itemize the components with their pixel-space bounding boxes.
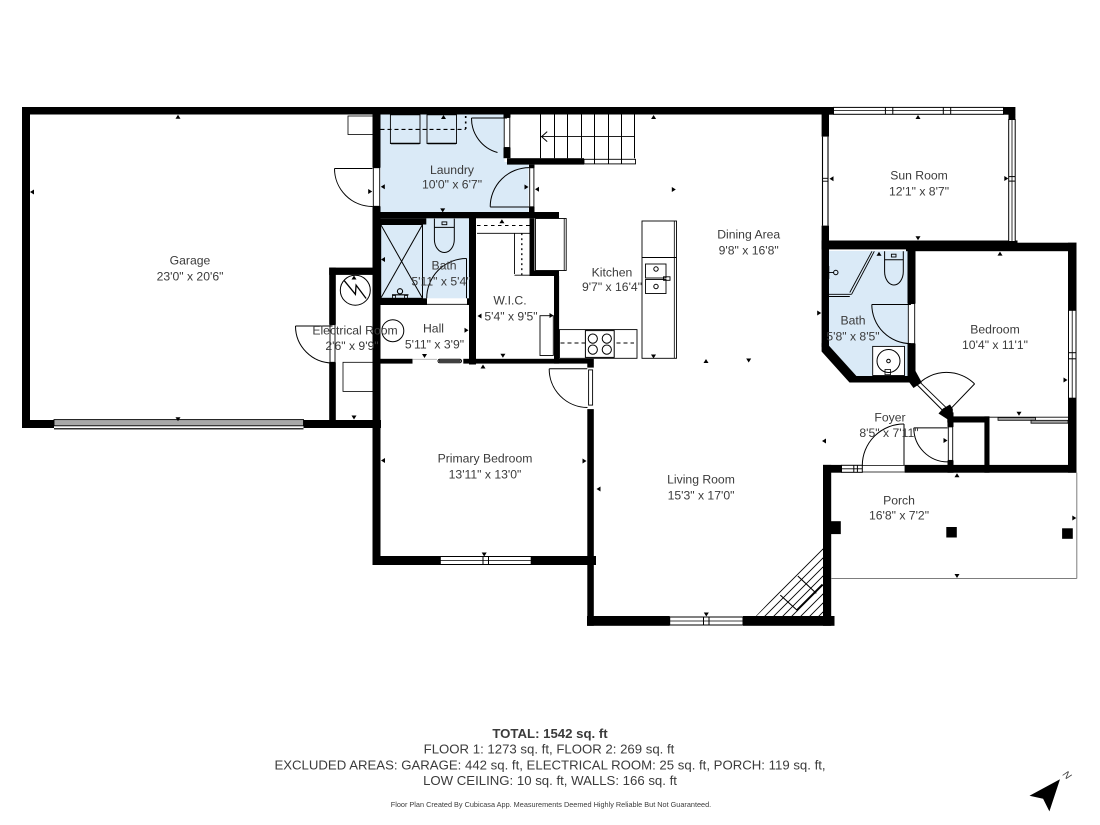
svg-text:23'0" x 20'6": 23'0" x 20'6" [157,270,224,284]
svg-text:Bedroom: Bedroom [970,323,1019,337]
svg-text:5'11" x 3'9": 5'11" x 3'9" [405,338,464,352]
svg-text:Living Room: Living Room [667,473,735,487]
svg-text:FLOOR 1: 1273 sq. ft, FLOOR 2:: FLOOR 1: 1273 sq. ft, FLOOR 2: 269 sq. f… [424,742,675,757]
svg-text:Dining Area: Dining Area [717,228,780,242]
svg-text:2'6" x 9'9": 2'6" x 9'9" [325,339,378,353]
svg-text:EXCLUDED AREAS: GARAGE: 442 sq: EXCLUDED AREAS: GARAGE: 442 sq. ft, ELEC… [274,757,825,772]
svg-text:9'8" x 16'8": 9'8" x 16'8" [719,244,779,258]
svg-text:Bath: Bath [840,314,865,328]
svg-text:W.I.C.: W.I.C. [493,294,526,308]
svg-text:10'4" x 11'1": 10'4" x 11'1" [962,338,1028,352]
svg-text:Primary Bedroom: Primary Bedroom [438,452,533,466]
svg-text:LOW CEILING: 10 sq. ft, WALLS:: LOW CEILING: 10 sq. ft, WALLS: 166 sq. f… [423,773,677,788]
svg-text:15'3" x 17'0": 15'3" x 17'0" [668,489,735,503]
svg-text:TOTAL: 1542 sq. ft: TOTAL: 1542 sq. ft [492,726,608,741]
svg-text:Electrical Room: Electrical Room [312,324,397,338]
svg-text:Garage: Garage [170,254,211,268]
svg-text:12'1" x 8'7": 12'1" x 8'7" [889,185,949,199]
svg-text:Hall: Hall [423,322,444,336]
svg-text:Kitchen: Kitchen [592,266,633,280]
svg-text:5'8" x 8'5": 5'8" x 8'5" [826,330,879,344]
svg-text:Porch: Porch [883,494,915,508]
svg-text:Laundry: Laundry [430,163,475,177]
svg-text:Sun Room: Sun Room [890,169,948,183]
svg-text:9'7" x 16'4": 9'7" x 16'4" [582,280,642,294]
svg-text:Bath: Bath [431,259,456,273]
svg-text:Foyer: Foyer [874,411,905,425]
svg-text:16'8" x 7'2": 16'8" x 7'2" [869,509,929,523]
svg-text:N: N [1060,769,1073,782]
svg-text:Floor Plan Created By Cubicasa: Floor Plan Created By Cubicasa App. Meas… [391,800,711,809]
svg-text:5'11" x 5'4": 5'11" x 5'4" [411,275,470,289]
svg-text:5'4" x 9'5": 5'4" x 9'5" [484,310,537,324]
svg-text:8'5" x 7'11": 8'5" x 7'11" [859,426,918,440]
svg-text:10'0" x 6'7": 10'0" x 6'7" [422,178,482,192]
svg-text:13'11" x 13'0": 13'11" x 13'0" [449,468,522,482]
